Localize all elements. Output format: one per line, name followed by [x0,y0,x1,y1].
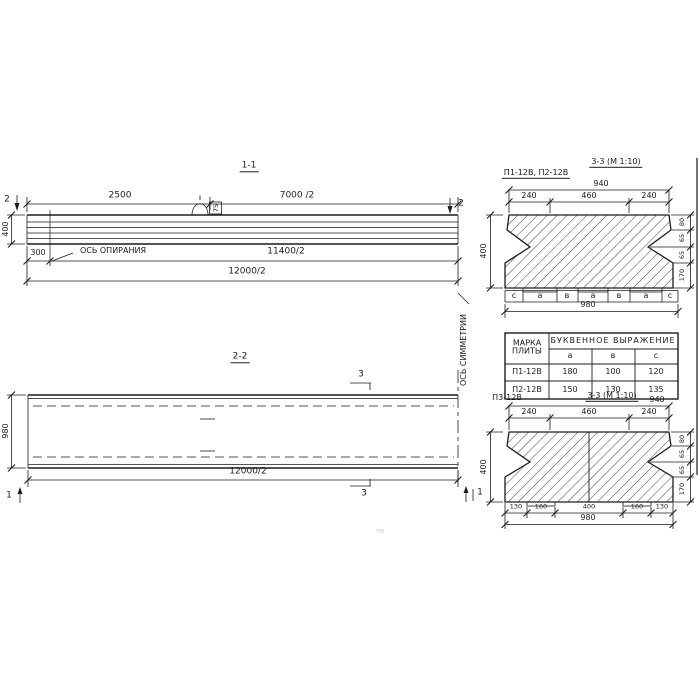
s33b-dim-460: 460 [581,408,596,416]
s33b-dim-160-r: 160 [631,504,643,511]
s33a-dim-65a: 65 [679,234,686,242]
table-col-b: в [611,352,616,360]
table-col-c: с [654,352,658,360]
section-2-2-title: 2-2 [231,352,250,363]
cut-1-label-right: 1 [477,488,483,497]
section-1-1-title: 1-1 [240,161,259,172]
symmetry-axis-label: ОСЬ СИММЕТРИИ [460,314,468,386]
table-row1-mark: П1-12В [512,368,542,376]
cut-1-label-left: 1 [6,491,12,500]
s33b-dim-160-l: 160 [535,504,547,511]
s33a-dim-170: 170 [679,269,686,281]
letter-a3: а [644,292,649,300]
s33b-dim-400b: 400 [583,504,595,511]
table-row2-a: 150 [562,386,577,394]
s33b-dim-170: 170 [679,483,686,495]
slab-cross-section-hatched [505,215,673,288]
cut-mark-1-right [464,486,474,502]
cut-mark-2-right [448,198,453,214]
s33a-dim-240-r: 240 [641,192,656,200]
s33a-dim-940: 940 [593,180,608,188]
s33b-dim-65a: 65 [679,450,686,458]
s33b-dim-980: 980 [580,514,595,522]
cut-mark-3-top [350,383,371,390]
letter-b1: в [565,292,570,300]
s33b-dim-400: 400 [480,459,488,474]
cut-2-label-right: 2 [458,199,464,208]
letter-b2: в [617,292,622,300]
dim-12000-2-s22: 12000/2 [229,467,266,476]
dim-12000-2-s11: 12000/2 [228,267,265,276]
letter-a1: а [538,292,543,300]
table-row2-c: 135 [648,386,663,394]
s33b-mark-label: П3-12В [492,394,522,402]
dim-7000-2: 7000 /2 [280,191,315,200]
drawing-sheet: 1-1 2 2 2500 7000 /2 400 300 ОСЬ ОПИРАНИ… [0,0,700,700]
s33b-dim-80: 80 [679,435,686,443]
s33b-dim-240-l: 240 [521,408,536,416]
s33b-dim-240-r: 240 [641,408,656,416]
s33a-dim-80: 80 [679,218,686,226]
letter-c1: с [512,292,516,300]
dim-400-beam: 400 [2,221,10,236]
table-row1-a: 180 [562,368,577,376]
cut-3-label-bottom: 3 [361,489,367,498]
cut-mark-2-left [15,195,20,211]
s33a-dim-460: 460 [581,192,596,200]
letter-c2: с [668,292,672,300]
s33a-dim-980: 980 [580,301,595,309]
table-row1-c: 120 [648,368,663,376]
table-row1-b: 100 [605,368,620,376]
s33a-dim-240-l: 240 [521,192,536,200]
plate-outline [28,395,458,468]
s33b-dim-130-r: 130 [656,504,668,511]
s33a-dim-400: 400 [480,243,488,258]
dim-2500: 2500 [109,191,132,200]
cut-mark-1-left [18,487,23,503]
cut-3-label-top: 3 [358,370,364,379]
beam-outline [27,215,458,244]
s33b-dim-130-l: 130 [510,504,522,511]
s33a-mark-label: П1-12В, П2-12В [502,169,570,179]
support-axis-label: ОСЬ ОПИРАНИЯ [80,247,146,255]
cut-2-label-left: 2 [4,195,10,204]
s33b-dim-65b: 65 [679,466,686,474]
dim-980-plate: 980 [2,423,10,438]
loop-label: 75 [212,204,219,212]
s33b-title: 3-3 (М 1:10) [585,392,638,402]
drawing-linework [0,0,700,700]
symmetry-leader [458,293,469,304]
s33b-dim-940: 940 [649,396,664,404]
s33a-title: 3-3 (М 1:10) [589,158,642,168]
table-mark-header: МАРКА ПЛИТЫ [512,340,542,357]
dim-300: 300 [30,249,45,257]
dim-11400-2: 11400/2 [267,247,304,256]
table-col-a: а [568,352,573,360]
faint-print-mark: пв [376,528,384,535]
s33a-dim-65b: 65 [679,251,686,259]
table-group-header: БУКВЕННОЕ ВЫРАЖЕНИЕ [550,337,675,345]
